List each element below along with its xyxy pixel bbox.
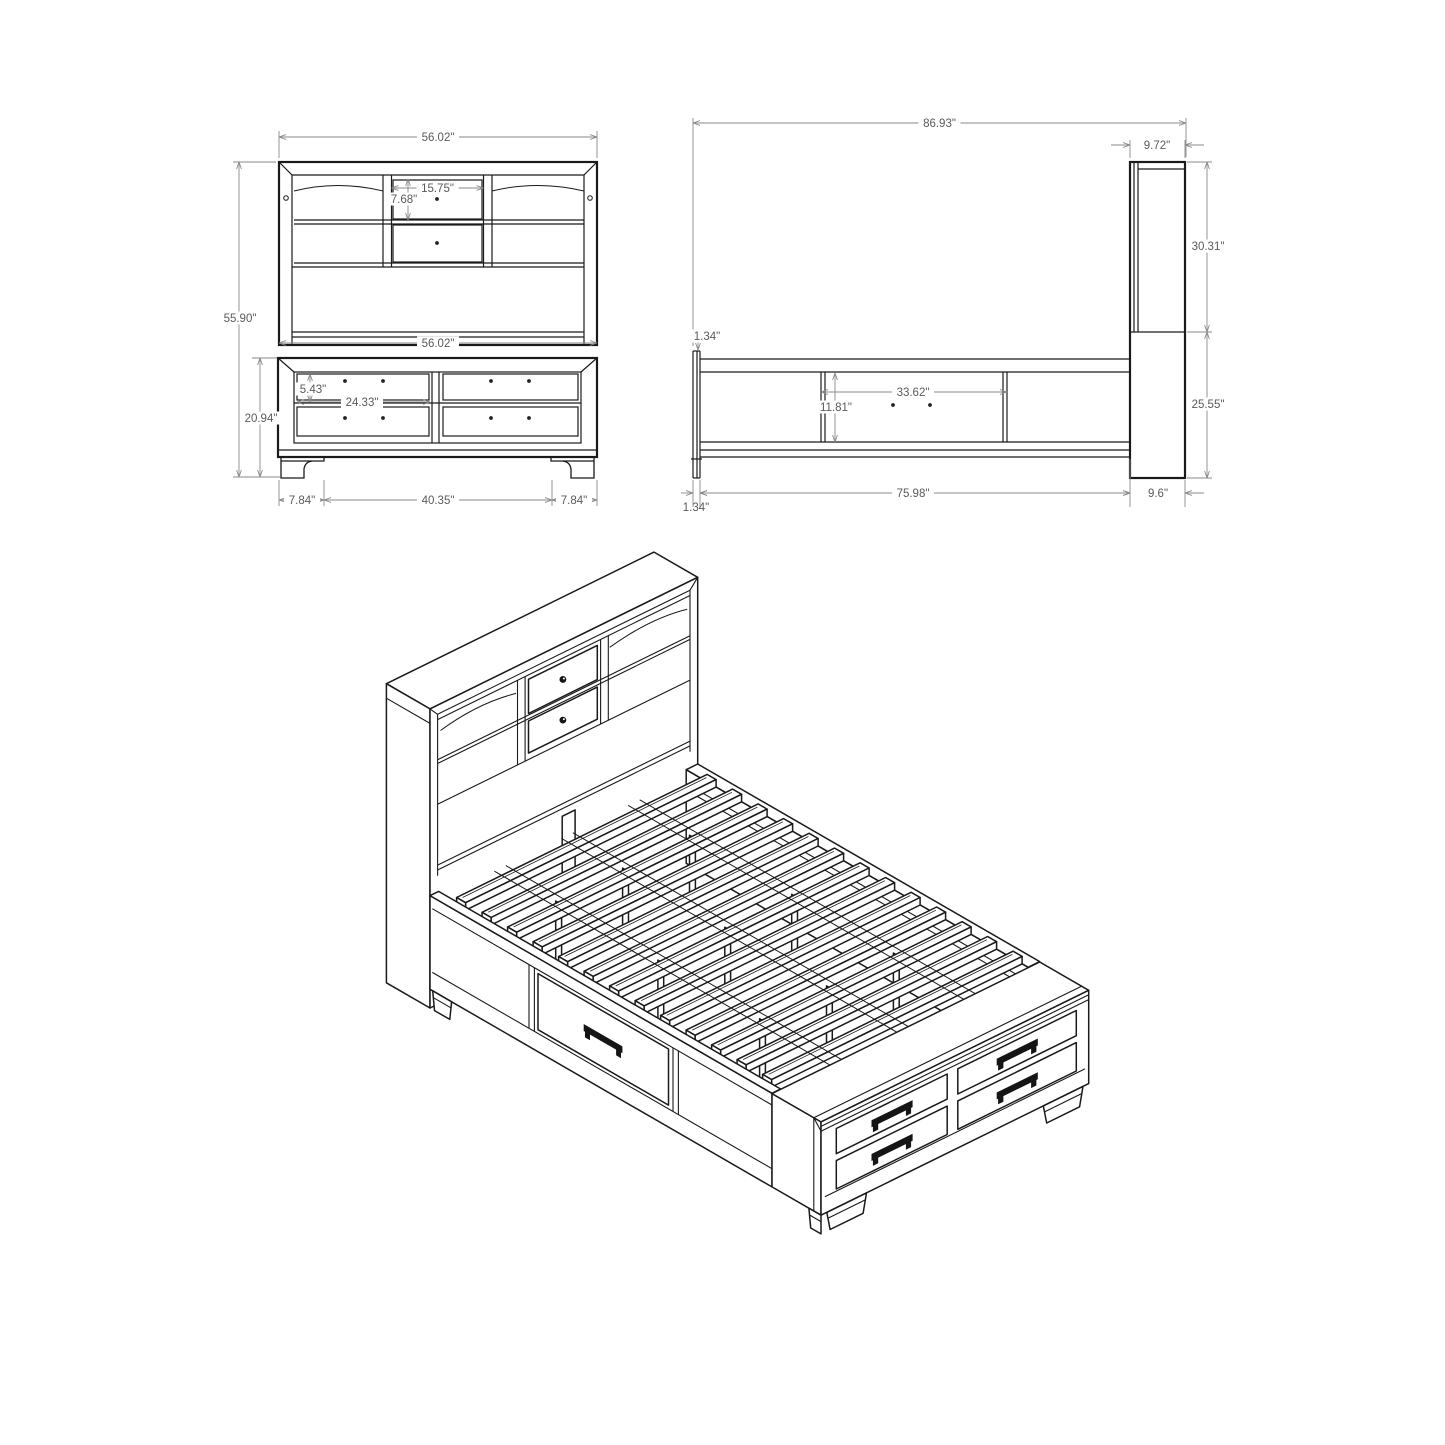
dimension-label: 20.94" <box>245 413 278 425</box>
dimension-label: 7.68" <box>391 194 417 206</box>
storage-bed-technical-drawing: 56.02"55.90"15.75"7.68"56.02"5.43"24.33"… <box>0 0 1445 1445</box>
dimension-label: 1.34" <box>683 502 709 514</box>
isometric-view <box>386 552 1088 1234</box>
dimension-annotations: 56.02"55.90"15.75"7.68"56.02"5.43"24.33"… <box>219 117 1229 515</box>
dimension-label: 5.43" <box>300 384 326 396</box>
dimension-label: 7.84" <box>289 495 315 507</box>
dimension-label: 33.62" <box>897 387 930 399</box>
drawer-knob <box>559 676 566 683</box>
dimension-label: 24.33" <box>346 397 379 409</box>
technical-drawing-page: 56.02"55.90"15.75"7.68"56.02"5.43"24.33"… <box>0 0 1445 1445</box>
dimension-label: 56.02" <box>422 338 455 350</box>
dimension-label: 9.6" <box>1148 488 1168 500</box>
dimension-label: 25.55" <box>1192 399 1225 411</box>
dimension-label: 1.34" <box>694 331 720 343</box>
dimension-label: 56.02" <box>422 132 455 144</box>
dimension-label: 40.35" <box>422 495 455 507</box>
dimension-label: 15.75" <box>421 183 454 195</box>
drawer-knob <box>559 717 566 724</box>
dimension-label: 86.93" <box>923 118 956 130</box>
dimension-label: 55.90" <box>224 313 257 325</box>
dimension-label: 7.84" <box>561 495 587 507</box>
side-elevation-view <box>691 162 1185 478</box>
dimension-label: 9.72" <box>1144 140 1170 152</box>
dimension-label: 75.98" <box>897 488 930 500</box>
dimension-label: 11.81" <box>820 402 852 414</box>
dimension-label: 30.31" <box>1192 241 1225 253</box>
front-elevation-view <box>278 162 597 478</box>
